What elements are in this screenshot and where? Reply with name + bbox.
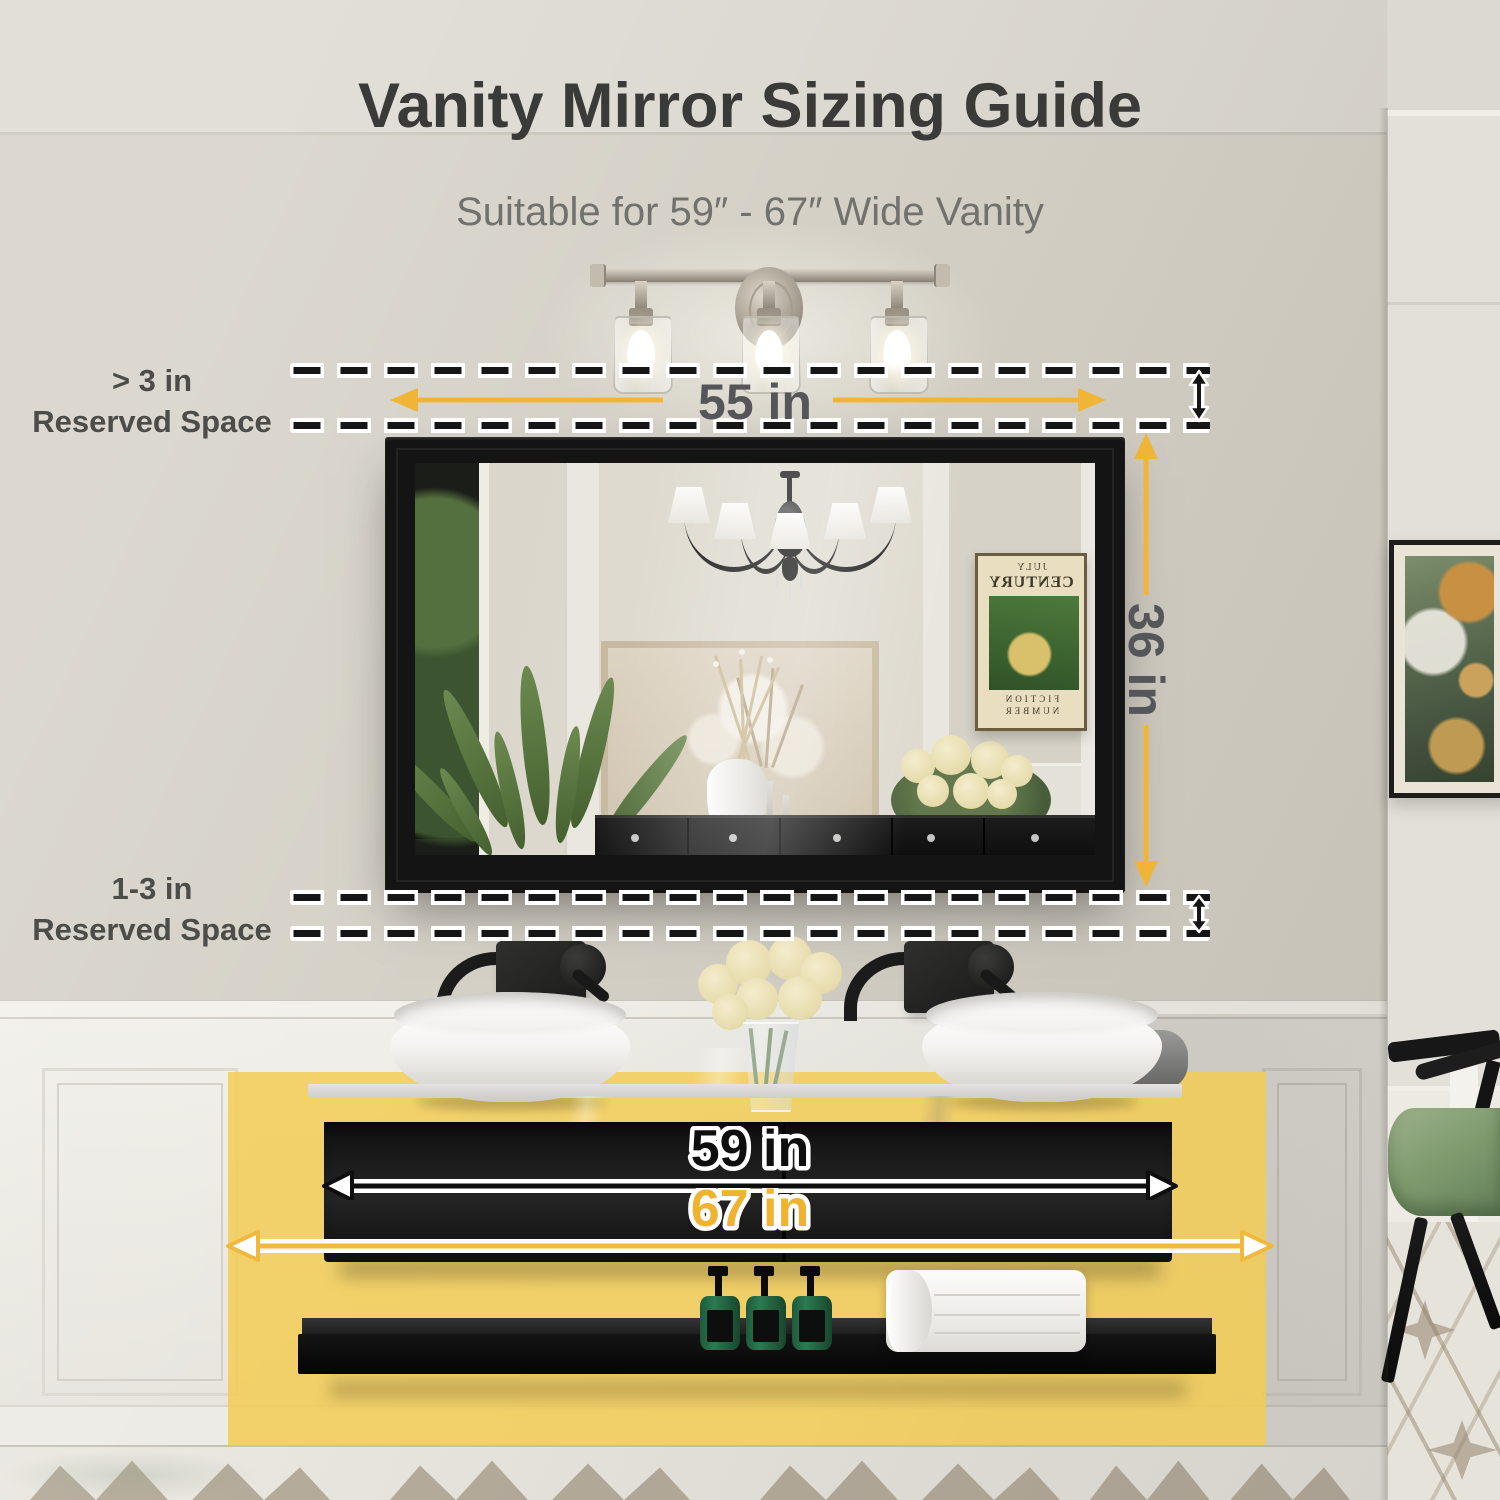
towel-fold-line xyxy=(934,1294,1080,1296)
chandelier-canopy xyxy=(780,471,800,478)
sideboard-seam xyxy=(779,818,781,855)
lamp-stem xyxy=(635,281,647,311)
vessel-sink-left-rim xyxy=(394,992,626,1038)
poster-title-text: CENTURY xyxy=(978,574,1084,592)
lamp-stem xyxy=(891,281,903,311)
reserved-space-label-bottom: 1-3 in Reserved Space xyxy=(22,868,282,950)
chandelier-shade xyxy=(870,487,912,523)
reflected-sideboard xyxy=(595,815,1095,855)
poster-mirrored-content: JULY CENTURY FICTION NUMBER xyxy=(978,556,1084,728)
sideboard-seam xyxy=(983,818,985,855)
chandelier-finial xyxy=(782,557,798,581)
poster-artwork xyxy=(989,596,1079,690)
wainscot-panel-left xyxy=(42,1068,238,1396)
chandelier-crystal xyxy=(789,583,791,601)
chandelier-shade xyxy=(714,503,756,539)
reserved-space-bottom-caption: Reserved Space xyxy=(22,909,282,950)
bottle-label xyxy=(707,1310,733,1342)
reserved-space-dashline-bottom-upper xyxy=(290,890,1210,905)
bottle-pump-stem xyxy=(715,1274,722,1298)
sizing-guide-infographic: Vanity Mirror Sizing Guide Suitable for … xyxy=(0,0,1500,1500)
vanity-max-width-arrow: 67 in xyxy=(222,1188,1278,1262)
reflected-poster-frame: JULY CENTURY FICTION NUMBER xyxy=(975,553,1087,731)
sideboard-knob xyxy=(927,834,935,842)
vanity-mirror-glass: JULY CENTURY FICTION NUMBER xyxy=(415,463,1095,855)
branch-bud xyxy=(767,657,773,663)
reserved-space-bottom-value: 1-3 in xyxy=(22,868,282,909)
poster-footer-text2: NUMBER xyxy=(978,706,1084,716)
shelf-shadow xyxy=(330,1380,1186,1398)
wall-corner-shadow xyxy=(1379,108,1388,1500)
chandelier-crystal xyxy=(776,571,778,587)
vanity-min-width-value: 59 in xyxy=(691,1126,810,1178)
towel-fold-line xyxy=(934,1314,1080,1316)
yellow-rose xyxy=(987,779,1017,809)
reserved-space-dashline-bottom-lower xyxy=(290,926,1210,941)
yellow-rose xyxy=(931,735,971,775)
white-towel-stack xyxy=(886,1270,1086,1352)
sideboard-seam xyxy=(891,818,893,855)
soap-bottle xyxy=(700,1296,740,1350)
sideboard-knob xyxy=(729,834,737,842)
sideboard-knob xyxy=(631,834,639,842)
reserved-space-top-caption: Reserved Space xyxy=(22,401,282,442)
vanity-max-width-value: 67 in xyxy=(691,1188,810,1238)
chandelier-shade xyxy=(824,503,866,539)
towel-fold-line xyxy=(934,1332,1080,1334)
mirror-height-value: 36 in xyxy=(1116,595,1176,725)
bottle-pump-stem xyxy=(761,1274,768,1298)
reserved-space-top-value: > 3 in xyxy=(22,360,282,401)
hydrangea-bloom xyxy=(712,994,748,1030)
soap-bottle xyxy=(746,1296,786,1350)
yellow-rose xyxy=(953,773,989,809)
sideboard-seam xyxy=(687,818,689,855)
sideboard-knob xyxy=(833,834,841,842)
wainscot-panel-right-inner xyxy=(1277,1083,1347,1381)
page-title: Vanity Mirror Sizing Guide xyxy=(0,70,1500,142)
reflected-chandelier xyxy=(670,471,910,641)
reflected-branches xyxy=(683,653,793,765)
dash-marks xyxy=(290,930,1210,937)
towel-rolled-edge xyxy=(886,1270,932,1352)
poster-footer-text1: FICTION xyxy=(978,694,1084,704)
soap-bottle xyxy=(792,1296,832,1350)
reserved-gap-arrow-top-icon xyxy=(1182,368,1216,424)
dash-marks xyxy=(290,367,1210,374)
branch-bud xyxy=(713,661,719,667)
reserved-gap-arrow-bottom-icon xyxy=(1182,894,1216,934)
mirror-width-value: 55 in xyxy=(665,376,845,428)
yellow-rose xyxy=(917,775,949,807)
bottle-label xyxy=(799,1310,825,1342)
chandelier-crystal xyxy=(800,575,802,589)
wainscot-panel-left-inner xyxy=(57,1083,223,1381)
poster-month-text: JULY xyxy=(978,562,1084,573)
tile-green-tint xyxy=(0,1450,260,1500)
adjacent-picture-rail xyxy=(1387,302,1500,305)
lamp-stem xyxy=(763,281,775,311)
vessel-sink-right-rim xyxy=(926,992,1158,1038)
marble-counter-edge xyxy=(306,1096,1184,1122)
wall-art-canvas xyxy=(1405,556,1494,782)
reserved-space-label-top: > 3 in Reserved Space xyxy=(22,360,282,442)
light-fixture-endcap xyxy=(590,264,606,287)
hydrangea-bloom xyxy=(778,976,822,1020)
bottle-pump-stem xyxy=(807,1274,814,1298)
dash-marks xyxy=(290,894,1210,901)
wall-art-frame xyxy=(1389,540,1500,798)
bottle-label xyxy=(753,1310,779,1342)
sideboard-knob xyxy=(1031,834,1039,842)
light-fixture-endcap xyxy=(934,264,950,287)
accent-chair-seat xyxy=(1388,1108,1500,1216)
branch-bud xyxy=(739,649,745,655)
chandelier-shade xyxy=(668,487,710,523)
adjacent-tile-floor xyxy=(1387,1222,1500,1500)
